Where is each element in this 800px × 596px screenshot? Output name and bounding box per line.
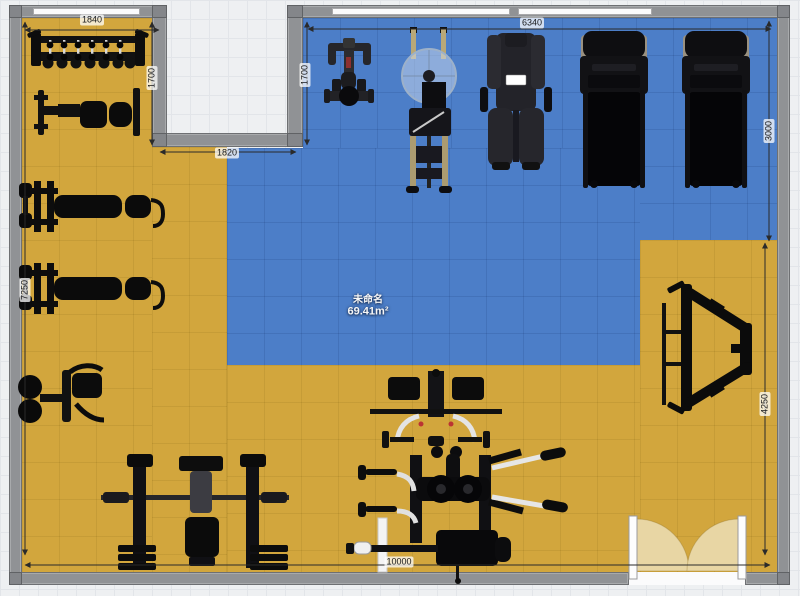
door-opening xyxy=(629,572,745,585)
double-door[interactable] xyxy=(629,516,746,585)
room-name: 未命名 xyxy=(348,291,389,306)
dimension-label-alcove-depth[interactable]: 1700 xyxy=(147,66,158,90)
power-rack-bench[interactable] xyxy=(101,454,289,570)
dimension-label-right-lower[interactable]: 4250 xyxy=(760,392,771,416)
room-label[interactable]: 未命名 69.41m² xyxy=(348,291,389,318)
rowing-machine[interactable] xyxy=(402,27,456,193)
door-swing-right xyxy=(687,519,739,571)
door-jamb-right xyxy=(738,516,746,579)
machine-label xyxy=(506,75,526,85)
pec-deck-machine[interactable] xyxy=(18,366,104,423)
door-jamb-left xyxy=(629,516,637,579)
dimension-label-notch-width[interactable]: 1820 xyxy=(215,148,239,159)
dimension-label-left-height[interactable]: 7250 xyxy=(20,278,31,302)
multi-gym[interactable] xyxy=(480,33,552,170)
spin-bike[interactable] xyxy=(324,38,374,106)
treadmill-2[interactable] xyxy=(682,31,750,188)
dimension-label-step-depth[interactable]: 1700 xyxy=(300,63,311,87)
dimension-label-top-width[interactable]: 6340 xyxy=(520,18,544,29)
bench-press-station-1[interactable] xyxy=(19,181,163,232)
room-area: 69.41m² xyxy=(348,306,389,318)
adjustable-bench[interactable] xyxy=(34,88,140,136)
floor-plan-canvas: 1840 1700 1700 1820 6340 3000 4250 7250 … xyxy=(0,0,800,596)
dimension-label-right-upper[interactable]: 3000 xyxy=(764,119,775,143)
bench-press-station-2[interactable] xyxy=(19,263,163,314)
dimension-label-total-width[interactable]: 10000 xyxy=(384,557,413,568)
dumbbell-rack[interactable] xyxy=(27,29,149,69)
plan-drawing-layer xyxy=(0,0,800,596)
dimension-label-alcove-width[interactable]: 1840 xyxy=(80,15,104,26)
multi-station-gym[interactable] xyxy=(346,369,569,584)
door-swing-left xyxy=(637,519,689,571)
treadmill-1[interactable] xyxy=(580,31,648,188)
leg-press-frame[interactable] xyxy=(662,280,752,415)
